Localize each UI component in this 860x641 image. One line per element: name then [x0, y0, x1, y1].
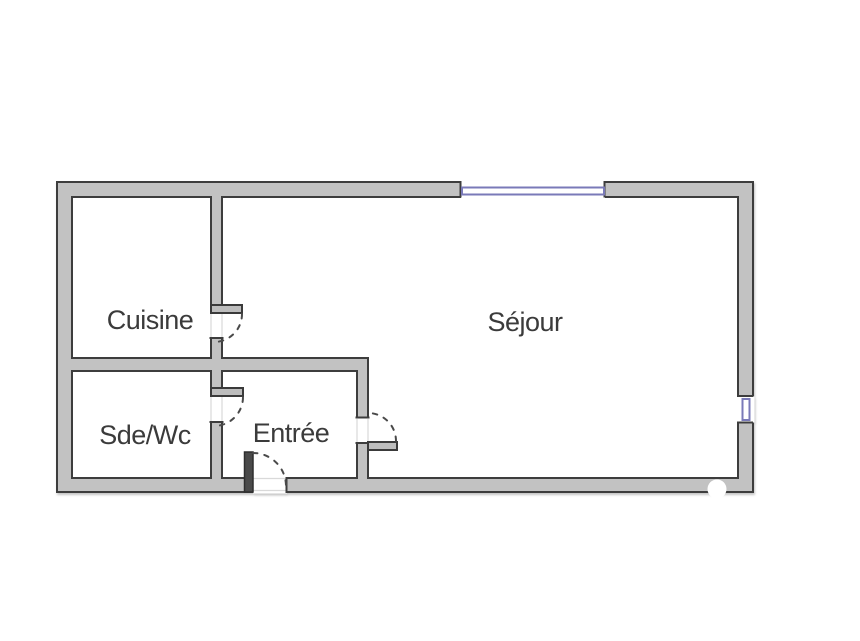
room-label-entree: Entrée	[253, 418, 330, 448]
room-label-cuisine: Cuisine	[107, 305, 194, 335]
window-top	[462, 188, 604, 195]
door-leaf-sde-wc	[211, 388, 243, 396]
door-leaf-entree-sejour	[368, 442, 397, 450]
floor-plan: Cuisine Séjour Sde/Wc Entrée	[0, 0, 860, 641]
wall-cap-cuisine-door	[210, 337, 224, 339]
room-label-sde-wc: Sde/Wc	[99, 420, 191, 450]
room-label-sejour: Séjour	[487, 307, 563, 337]
wall-cap-sde-wc-door	[210, 421, 224, 423]
watermark-circle	[708, 480, 727, 499]
door-leaf-entry	[245, 452, 254, 492]
wall-cap-sejour-door-top	[356, 417, 370, 419]
door-leaf-cuisine	[211, 305, 242, 313]
floor-plan-canvas: Cuisine Séjour Sde/Wc Entrée	[0, 0, 860, 641]
wall-cap-window-right-bottom	[737, 422, 753, 424]
window-right	[743, 399, 750, 420]
wall-cap-window-right-top	[737, 395, 753, 397]
